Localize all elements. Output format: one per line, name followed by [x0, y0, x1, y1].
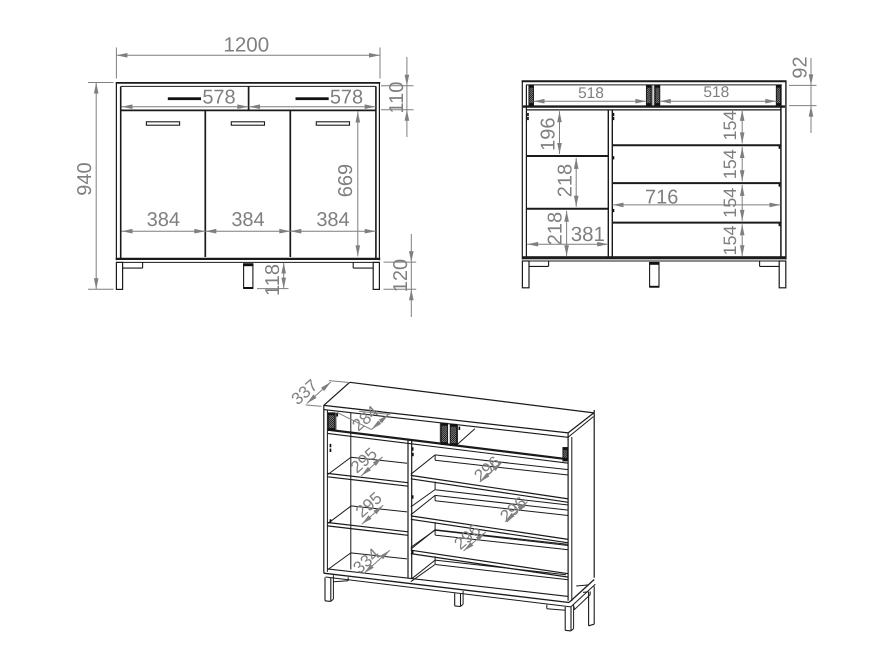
svg-text:384: 384 — [231, 209, 264, 231]
svg-text:92: 92 — [790, 56, 812, 78]
svg-text:218: 218 — [554, 164, 576, 197]
svg-text:218: 218 — [545, 212, 567, 245]
svg-text:518: 518 — [703, 84, 729, 101]
svg-text:154: 154 — [720, 225, 740, 255]
svg-text:578: 578 — [330, 86, 363, 108]
svg-text:518: 518 — [578, 85, 604, 102]
svg-text:154: 154 — [720, 188, 740, 218]
svg-text:110: 110 — [386, 82, 408, 114]
svg-text:669: 669 — [335, 164, 357, 197]
svg-text:154: 154 — [720, 149, 740, 179]
svg-text:940: 940 — [74, 162, 96, 195]
svg-text:196: 196 — [538, 118, 560, 151]
svg-text:578: 578 — [202, 86, 235, 108]
svg-text:154: 154 — [720, 110, 740, 140]
svg-text:118: 118 — [262, 264, 284, 296]
svg-text:384: 384 — [316, 209, 349, 231]
svg-text:381: 381 — [571, 223, 605, 246]
svg-text:120: 120 — [390, 259, 412, 292]
svg-text:384: 384 — [147, 209, 180, 231]
svg-text:1200: 1200 — [223, 34, 269, 57]
svg-text:716: 716 — [645, 186, 678, 208]
